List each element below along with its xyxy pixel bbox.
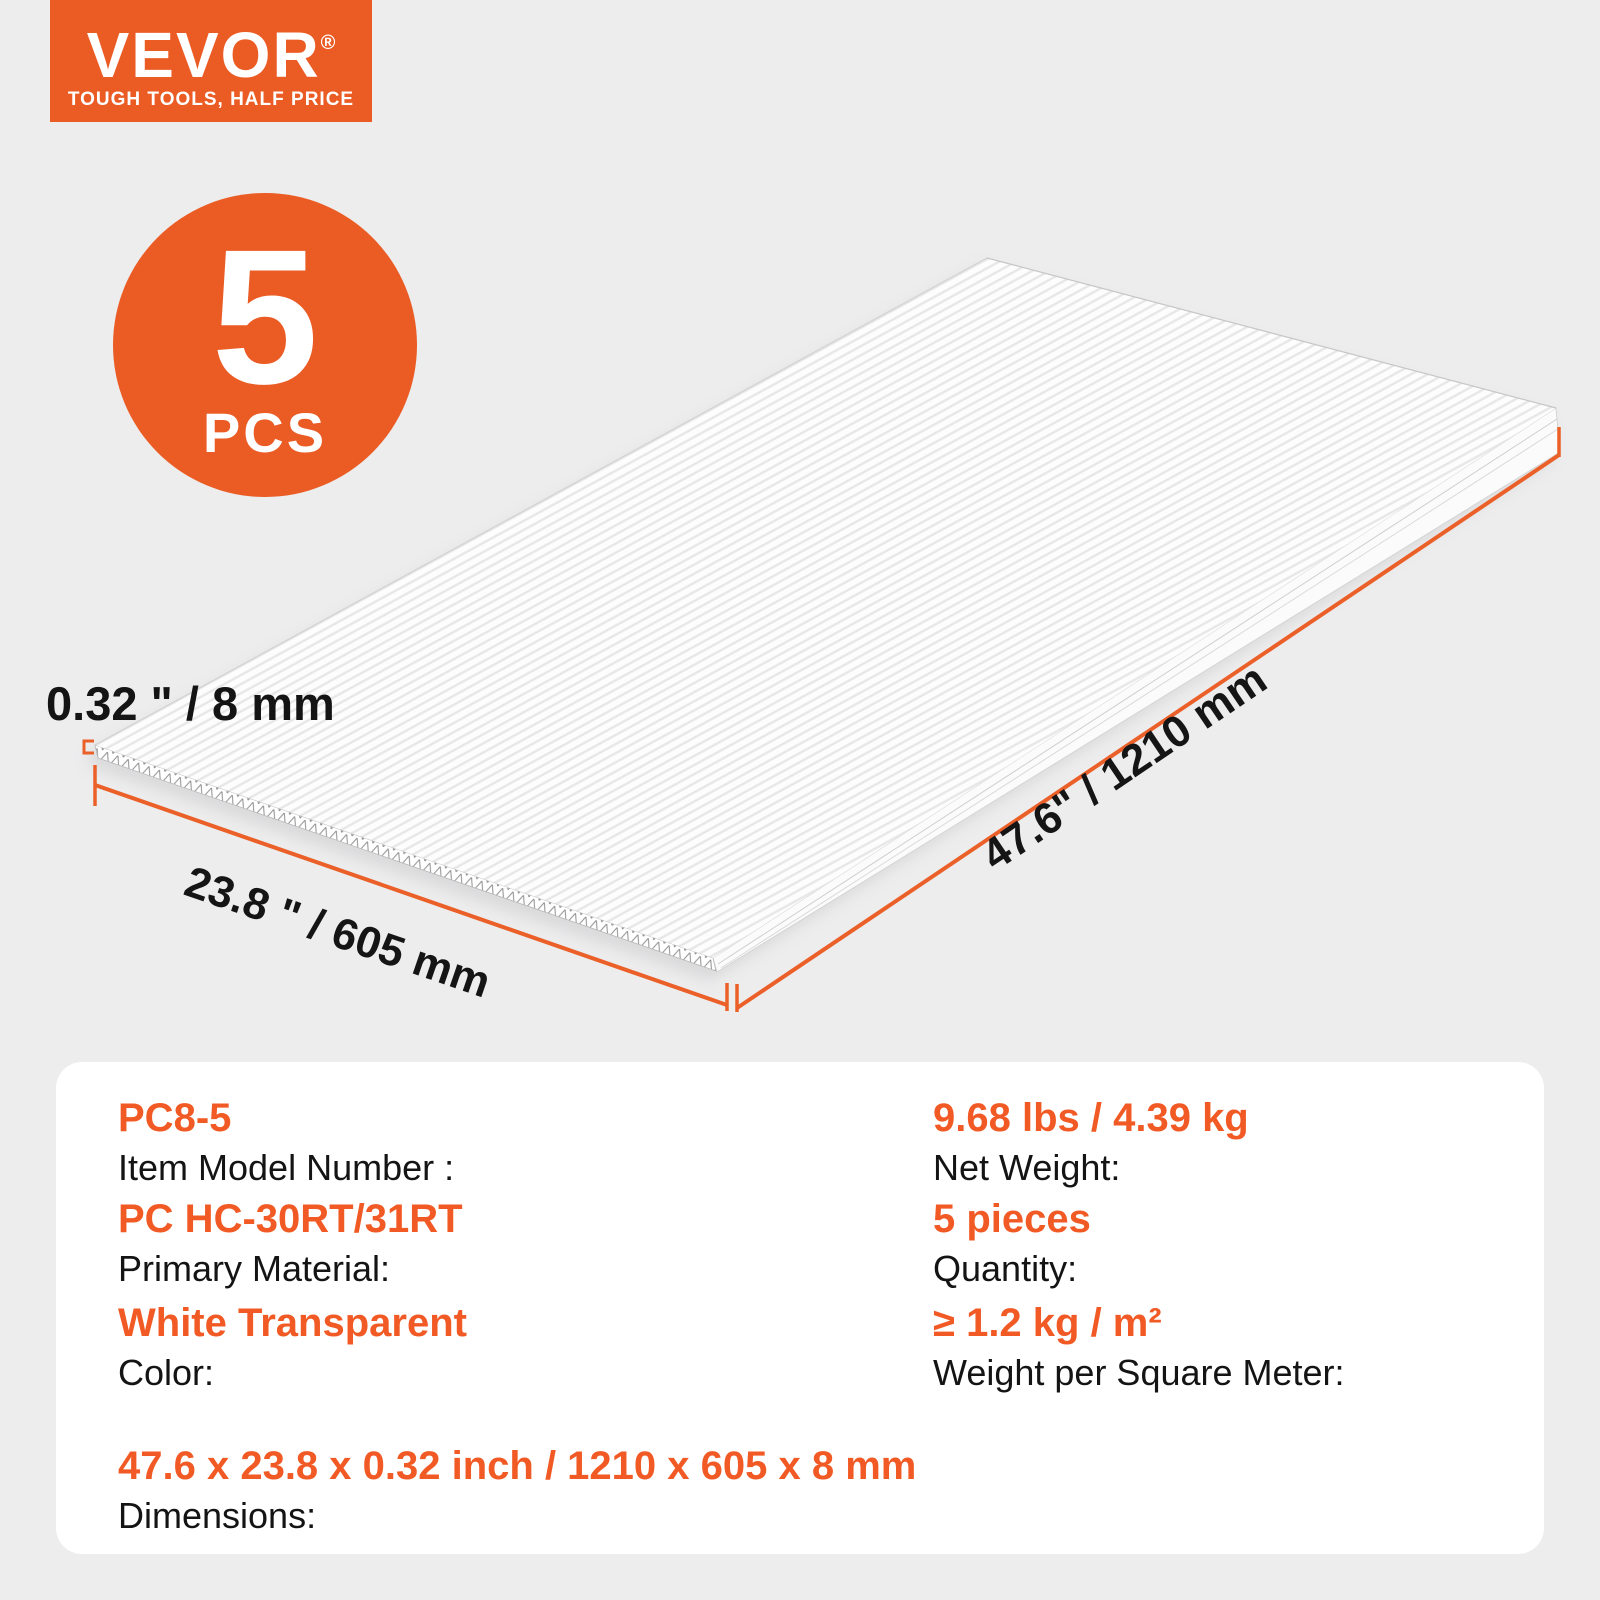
spec-dimensions: 47.6 x 23.8 x 0.32 inch / 1210 x 605 x 8…: [118, 1443, 916, 1537]
thickness-dimension-label: 0.32 " / 8 mm: [46, 676, 335, 731]
spec-label: Dimensions:: [118, 1495, 916, 1537]
spec-value: White Transparent: [118, 1300, 467, 1346]
spec-value: PC8-5: [118, 1095, 454, 1141]
spec-value: 47.6 x 23.8 x 0.32 inch / 1210 x 605 x 8…: [118, 1443, 916, 1489]
spec-weight-per-square-meter: ≥ 1.2 kg / m² Weight per Square Meter:: [933, 1300, 1345, 1394]
sheet-top-face: [95, 258, 1556, 958]
spec-value: 9.68 lbs / 4.39 kg: [933, 1095, 1249, 1141]
spec-label: Primary Material:: [118, 1248, 463, 1290]
thickness-bracket: [84, 741, 94, 753]
spec-label: Item Model Number :: [118, 1147, 454, 1189]
spec-label: Quantity:: [933, 1248, 1091, 1290]
spec-label: Net Weight:: [933, 1147, 1249, 1189]
spec-quantity: 5 pieces Quantity:: [933, 1196, 1091, 1290]
product-image: VEVOR® TOUGH TOOLS, HALF PRICE 5 PCS: [0, 0, 1600, 1600]
spec-label: Color:: [118, 1352, 467, 1394]
spec-item-model-number: PC8-5 Item Model Number :: [118, 1095, 454, 1189]
spec-color: White Transparent Color:: [118, 1300, 467, 1394]
spec-label: Weight per Square Meter:: [933, 1352, 1345, 1394]
spec-value: ≥ 1.2 kg / m²: [933, 1300, 1345, 1346]
spec-net-weight: 9.68 lbs / 4.39 kg Net Weight:: [933, 1095, 1249, 1189]
spec-primary-material: PC HC-30RT/31RT Primary Material:: [118, 1196, 463, 1290]
spec-value: 5 pieces: [933, 1196, 1091, 1242]
spec-value: PC HC-30RT/31RT: [118, 1196, 463, 1242]
